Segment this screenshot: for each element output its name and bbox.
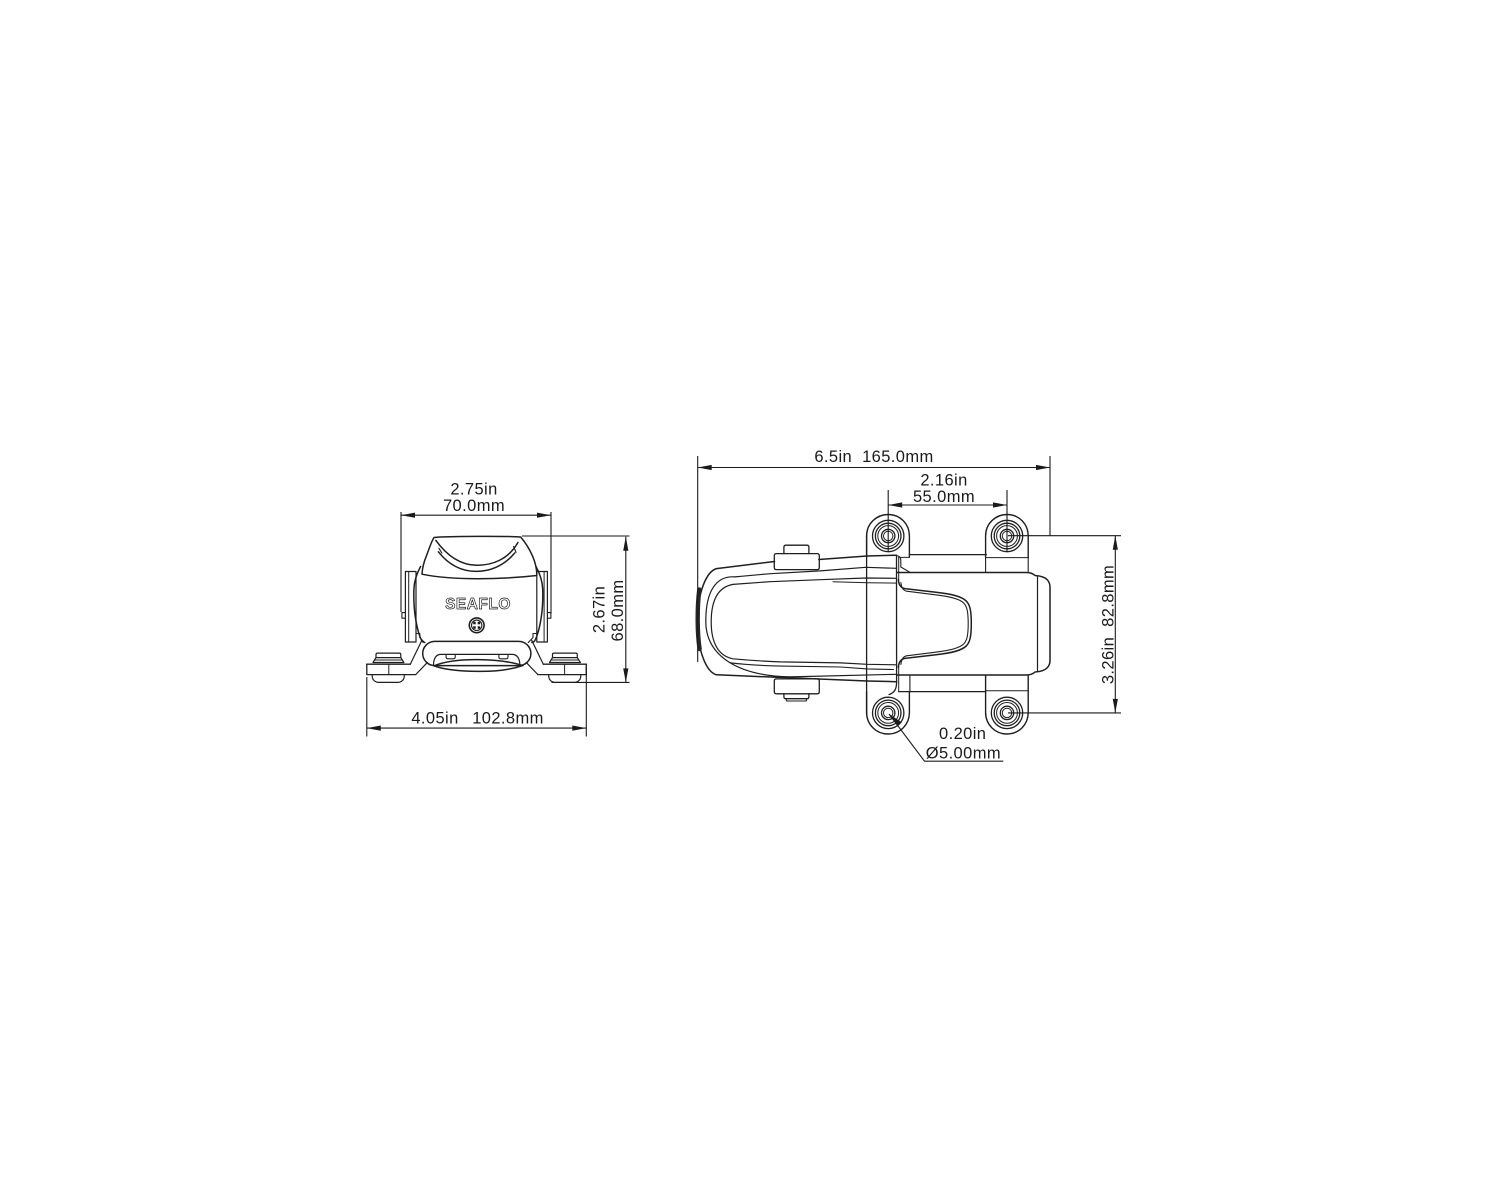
svg-text:SEAFLO: SEAFLO [445,596,511,613]
svg-text:0.20in: 0.20in [939,725,986,743]
svg-text:70.0mm: 70.0mm [443,497,505,515]
svg-text:2.75in: 2.75in [450,481,497,499]
svg-text:4.05in: 4.05in [411,710,458,728]
svg-text:102.8mm: 102.8mm [472,710,544,728]
svg-text:6.5in 165.0mm: 6.5in 165.0mm [814,448,933,466]
svg-text:2.16in: 2.16in [920,472,967,490]
svg-text:68.0mm: 68.0mm [609,579,627,641]
svg-text:2.67in: 2.67in [591,586,609,633]
svg-text:Ø5.00mm: Ø5.00mm [926,745,1001,763]
svg-text:55.0mm: 55.0mm [913,488,975,506]
